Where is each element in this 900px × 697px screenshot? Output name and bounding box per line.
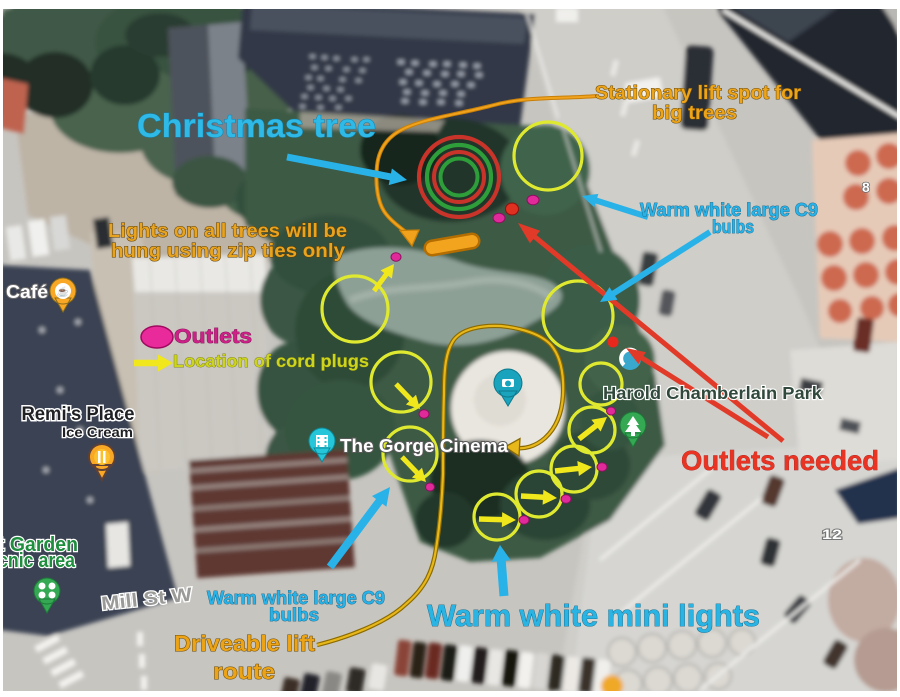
svg-text:bulbs: bulbs [712,217,754,237]
svg-text:12: 12 [822,526,842,542]
svg-text:☕: ☕ [57,285,69,298]
svg-text:cnic area: cnic area [0,550,76,572]
svg-text:Warm white mini lights: Warm white mini lights [427,598,760,633]
svg-text:Outlets needed: Outlets needed [681,445,879,476]
svg-text:Remi's Place: Remi's Place [22,403,135,425]
svg-text:Lights on all trees will be: Lights on all trees will be [108,221,347,242]
svg-text:8: 8 [862,179,870,195]
svg-text:bulbs: bulbs [269,605,319,625]
svg-text:Café: Café [6,282,48,302]
svg-text:Christmas tree: Christmas tree [137,107,376,144]
svg-text:big trees: big trees [652,103,737,124]
svg-text:The Gorge Cinema: The Gorge Cinema [340,435,509,456]
svg-text:route: route [213,659,275,684]
svg-text:Ice Cream: Ice Cream [62,425,133,440]
svg-text:hung using zip ties only: hung using zip ties only [111,241,345,262]
svg-text:Harold Chamberlain Park: Harold Chamberlain Park [603,383,822,403]
svg-text:Outlets: Outlets [174,326,252,348]
svg-text:Driveable lift: Driveable lift [174,631,316,656]
svg-text:Location of cord plugs: Location of cord plugs [173,351,369,371]
svg-text:Stationary lift spot for: Stationary lift spot for [595,83,802,104]
